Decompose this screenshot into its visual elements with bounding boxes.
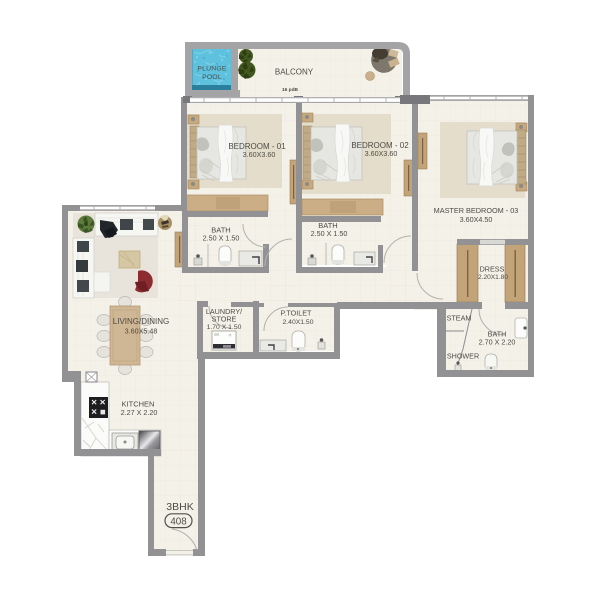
svg-text:2.27 X 2.20: 2.27 X 2.20	[121, 408, 158, 417]
svg-text:1.70 X 1.50: 1.70 X 1.50	[207, 324, 242, 331]
svg-text:2.40X1.50: 2.40X1.50	[283, 319, 314, 326]
svg-text:STEAM: STEAM	[447, 314, 472, 323]
svg-text:3.60X3.60: 3.60X3.60	[243, 150, 276, 159]
svg-text:3BHK: 3BHK	[166, 501, 193, 513]
svg-text:3.60X5.48: 3.60X5.48	[125, 327, 158, 336]
svg-text:DRESS: DRESS	[480, 265, 505, 274]
svg-text:POOL: POOL	[202, 74, 222, 81]
svg-text:2.20X1.80: 2.20X1.80	[478, 274, 508, 281]
svg-text:PLUNGE: PLUNGE	[197, 66, 226, 73]
svg-text:MASTER BEDROOM - 03: MASTER BEDROOM - 03	[434, 206, 519, 215]
svg-text:3.60X4.50: 3.60X4.50	[460, 215, 493, 224]
svg-text:BALCONY: BALCONY	[275, 68, 314, 77]
svg-text:LIVING/DINING: LIVING/DINING	[113, 317, 169, 326]
svg-text:16 pdB: 16 pdB	[282, 87, 299, 93]
svg-text:3.60X3.60: 3.60X3.60	[365, 149, 398, 158]
svg-text:SHOWER: SHOWER	[447, 352, 479, 361]
svg-text:2.70 X 2.20: 2.70 X 2.20	[479, 338, 516, 347]
svg-text:2.50 X 1.50: 2.50 X 1.50	[311, 229, 348, 238]
svg-text:408: 408	[170, 517, 187, 528]
svg-text:2.50 X 1.50: 2.50 X 1.50	[203, 234, 240, 243]
svg-text:P.TOILET: P.TOILET	[281, 309, 313, 318]
svg-text:STORE: STORE	[212, 315, 237, 324]
